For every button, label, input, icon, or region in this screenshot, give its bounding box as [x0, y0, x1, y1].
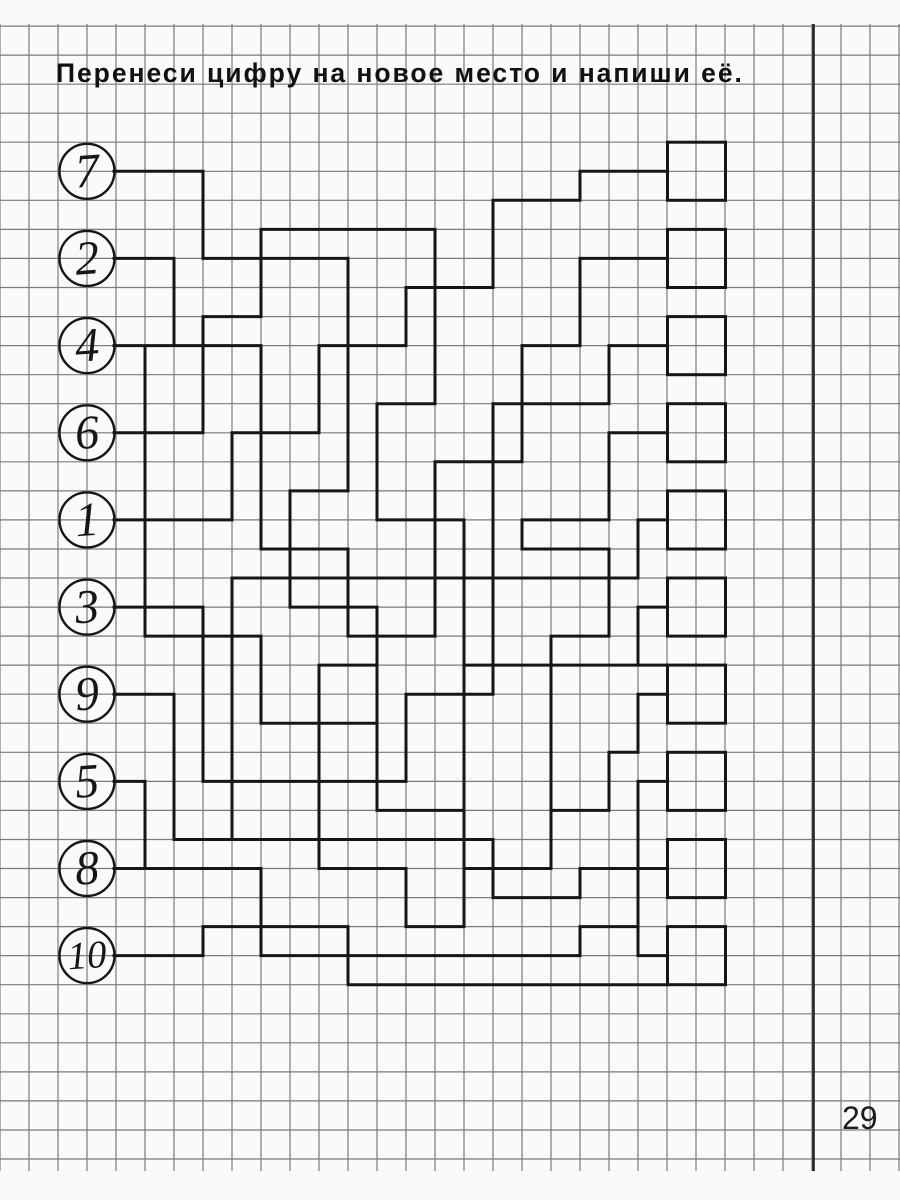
svg-text:3: 3 [72, 580, 101, 635]
svg-text:6: 6 [73, 406, 101, 461]
svg-text:8: 8 [73, 841, 101, 896]
svg-text:1: 1 [73, 493, 101, 548]
svg-text:5: 5 [73, 754, 101, 809]
svg-text:9: 9 [73, 667, 101, 722]
svg-text:10: 10 [66, 933, 108, 979]
svg-text:7: 7 [73, 144, 103, 199]
svg-text:2: 2 [73, 231, 101, 286]
svg-text:4: 4 [73, 318, 101, 373]
